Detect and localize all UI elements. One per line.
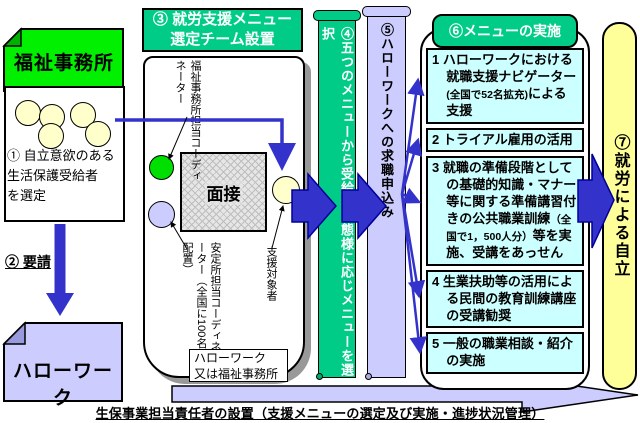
request-arrow-head bbox=[46, 293, 74, 316]
hellowork-label: ハローワーク bbox=[4, 356, 122, 410]
support-target-icon bbox=[272, 176, 300, 204]
location-note-box: ハローワーク 又は福祉事務所 bbox=[189, 349, 288, 382]
scroll-roll-top bbox=[362, 6, 411, 17]
menu-item-list: 1 ハローワークにおける就職支援ナビゲーター(全国で52名拡充)による支援 2 … bbox=[426, 48, 584, 374]
menu-item-4-text: 4 生業扶助等の活用による民間の教育訓練講座の受講勧奨 bbox=[432, 274, 576, 323]
menu-item-1-note: (全国で52名拡充) bbox=[446, 89, 528, 101]
welfare-coordinator-label: 福祉事務所担当コーディネーター bbox=[168, 60, 202, 188]
menu-item-1-text: 1 ハローワークにおける就職支援ナビゲーター bbox=[432, 52, 576, 84]
banner-menu-selection: ④五つのメニューから受給者の態様に応じメニューを選択 bbox=[318, 16, 356, 378]
menu-item-4: 4 生業扶助等の活用による民間の教育訓練講座の受講勧奨 bbox=[426, 270, 584, 329]
step1-select-recipients-text: ① 自立意欲のある 生活保護受給者 を選定 bbox=[7, 146, 123, 206]
welfare-office-box-fold bbox=[4, 29, 21, 46]
menu-item-3: 3 就職の準備段階としての基礎的知識・マナー等に関する準備講習付きの公共職業訓練… bbox=[426, 156, 584, 265]
interview-label: 面接 bbox=[205, 180, 243, 205]
support-target-label: 支援対象者 bbox=[263, 246, 279, 316]
footer-note: 生保事業担当責任者の設置（支援メニューの選定及び実施・進捗状況管理） bbox=[0, 403, 640, 422]
stability-coordinator-label: 安定所担当コーディネーター（全国に100名配置） bbox=[178, 242, 222, 354]
scroll-curl bbox=[365, 373, 372, 380]
person-icon bbox=[15, 100, 41, 126]
stability-coordinator-icon bbox=[148, 201, 175, 228]
welfare-office-label: 福祉事務所 bbox=[4, 48, 124, 75]
menu-item-5-text: 5 一般の職業相談・紹介の実施 bbox=[432, 336, 573, 368]
flow-diagram: ① 自立意欲のある 生活保護受給者 を選定 ② 要請 福祉事務所 ハローワーク … bbox=[0, 0, 640, 423]
person-icon bbox=[85, 121, 111, 147]
menu-implementation-header: ⑥メニューの実施 bbox=[432, 14, 578, 48]
goal-label: ⑦就労による自立 bbox=[608, 134, 632, 278]
banner-job-application: ⑤ハローワークへの求職申込み bbox=[367, 12, 406, 378]
banner-menu-selection-label: ④五つのメニューから受給者の態様に応じメニューを選択 bbox=[318, 27, 356, 377]
goal-bar: ⑦就労による自立 bbox=[602, 22, 637, 390]
hellowork-box-fold bbox=[4, 323, 25, 344]
scroll-roll-top bbox=[313, 10, 361, 21]
selection-team-header: ③ 就労支援メニュー 選定チーム設置 bbox=[142, 8, 303, 52]
menu-item-5: 5 一般の職業相談・紹介の実施 bbox=[426, 332, 584, 374]
step2-request-label: ② 要請 bbox=[5, 252, 51, 272]
menu-item-1: 1 ハローワークにおける就職支援ナビゲーター(全国で52名拡充)による支援 bbox=[426, 48, 584, 124]
banner-job-application-label: ⑤ハローワークへの求職申込み bbox=[377, 23, 396, 219]
menu-item-2-text: 2 トライアル雇用の活用 bbox=[432, 132, 573, 147]
menu-item-2: 2 トライアル雇用の活用 bbox=[426, 128, 584, 153]
